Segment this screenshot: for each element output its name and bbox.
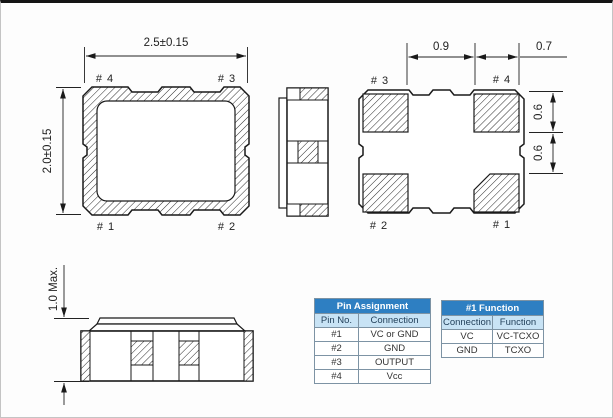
top-view-height-dimension: 2.0±0.15 <box>42 88 81 215</box>
width-dimension-text: 2.5±0.15 <box>144 37 189 49</box>
column-header-pin-no: Pin No. <box>315 314 359 328</box>
table-row: #4 Vcc <box>315 370 431 384</box>
castellation-pad <box>131 341 153 365</box>
pad-gap-dimension-text: 0.6 <box>533 145 545 161</box>
top-view-pin1-label: # 1 <box>97 221 115 233</box>
pin-assignment-table: Pin Assignment Pin No. Connection #1 VC … <box>314 298 431 384</box>
side-view <box>279 88 328 216</box>
bottom-cap-window <box>287 204 300 216</box>
column-header-function: Function <box>493 316 544 330</box>
table-cell: GND <box>442 344 493 358</box>
lid <box>279 98 287 208</box>
table-cell: #2 <box>315 342 359 356</box>
bottom-view: # 3 # 4 # 2 # 1 <box>359 74 524 232</box>
table-row: #3 OUTPUT <box>315 356 431 370</box>
table-header-row: Connection Function <box>442 316 544 330</box>
bottom-view-pin3-label: # 3 <box>371 75 389 87</box>
datasheet-drawing-page: # 4 # 3 # 1 # 2 2.5±0.15 2.0±0.15 <box>0 0 613 418</box>
table-cell: #3 <box>315 356 359 370</box>
height-dimension-text: 2.0±0.15 <box>42 129 54 174</box>
table-row: #2 GND <box>315 342 431 356</box>
table-cell: VC or GND <box>359 328 431 342</box>
pad-3 <box>363 94 408 132</box>
pin1-function-table: #1 Function Connection Function VC VC-TC… <box>441 300 544 358</box>
table-title-row: Pin Assignment <box>315 299 431 314</box>
top-view: # 4 # 3 # 1 # 2 <box>83 73 249 233</box>
top-cap-window <box>287 88 300 100</box>
table-cell: Vcc <box>359 370 431 384</box>
body <box>81 331 253 381</box>
bottom-view-pin1-label: # 1 <box>493 219 511 231</box>
table-row: GND TCXO <box>442 344 544 358</box>
table-row: #1 VC or GND <box>315 328 431 342</box>
table-cell: GND <box>359 342 431 356</box>
left-end-cap <box>81 331 90 381</box>
pad-pitch-dimension-text: 0.9 <box>433 41 449 53</box>
center-electrode <box>298 141 318 163</box>
pad-width-dimension-text: 0.7 <box>536 41 552 53</box>
front-view <box>81 318 253 381</box>
table-cell: OUTPUT <box>359 356 431 370</box>
package-cavity <box>97 101 235 201</box>
pad-4 <box>474 94 519 132</box>
column-header-connection: Connection <box>442 316 493 330</box>
pad-2 <box>363 174 408 212</box>
top-view-pin4-label: # 4 <box>96 73 114 85</box>
max-height-dimension-text: 1.0 Max. <box>48 267 60 311</box>
castellation-pad <box>179 341 199 365</box>
lid-top-step <box>97 318 237 324</box>
table-cell: VC <box>442 330 493 344</box>
pin1-function-title: #1 Function <box>442 301 544 316</box>
bottom-view-pin4-label: # 4 <box>493 74 511 86</box>
table-title-row: #1 Function <box>442 301 544 316</box>
top-view-pin2-label: # 2 <box>218 221 236 233</box>
bottom-view-vertical-dimensions: 0.6 0.6 <box>529 92 563 174</box>
table-row: VC VC-TCXO <box>442 330 544 344</box>
table-header-row: Pin No. Connection <box>315 314 431 328</box>
column-header-connection: Connection <box>359 314 431 328</box>
bottom-view-horizontal-dimensions: 0.9 0.7 <box>407 41 567 85</box>
pad-height-dimension-text: 0.6 <box>533 104 545 120</box>
lid-bottom-step <box>89 324 245 331</box>
table-cell: TCXO <box>493 344 544 358</box>
top-view-pin3-label: # 3 <box>218 73 236 85</box>
right-end-cap <box>244 331 253 381</box>
table-cell: #4 <box>315 370 359 384</box>
table-cell: VC-TCXO <box>493 330 544 344</box>
table-cell: #1 <box>315 328 359 342</box>
bottom-view-pin2-label: # 2 <box>370 220 388 232</box>
pin-assignment-title: Pin Assignment <box>315 299 431 314</box>
